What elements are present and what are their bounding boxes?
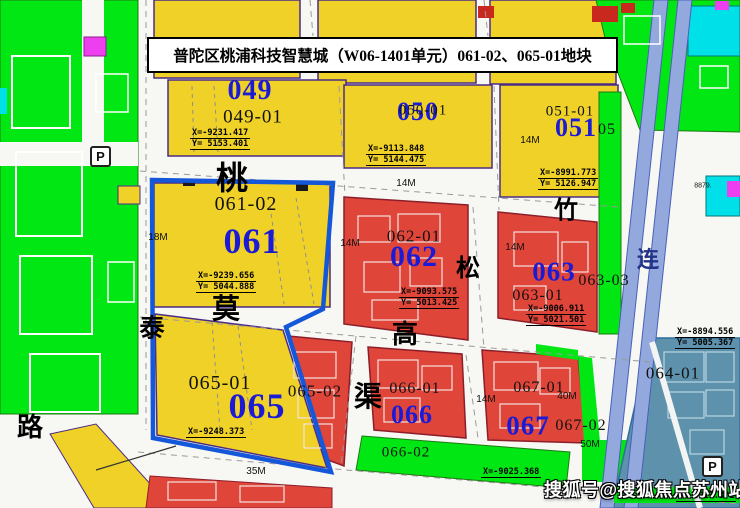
parking-icon: P [90,146,111,167]
planning-map: 049050051061062063065066067049-01050-010… [0,0,740,508]
parcel-number-061: 061 [224,223,281,259]
parcel-sublabel-066-02: 066-02 [382,446,431,461]
parcel-number-066: 066 [391,402,433,428]
parcel-sublabel-05: 05 [598,122,616,138]
parcel-number-062: 062 [390,242,438,272]
parcel-sublabel-050-01: 050-01 [399,104,448,119]
coordinate-line: X=-9006.911 [526,304,586,315]
coordinate-line: Y= 5126.947 [538,179,598,190]
road-width-label: 50M [580,440,599,450]
road-name-char: 泰 [139,317,164,342]
coordinate-line: Y= 5005.367 [675,338,735,349]
parcel-sublabel-051-01: 051-01 [546,105,595,120]
coordinate-line: Y= 5013.425 [399,298,459,309]
parcel-sublabel-065-01: 065-01 [189,373,252,393]
coordinate-line: X=-9248.373 [186,427,246,438]
parcel-number-049: 049 [228,77,273,105]
parcel-sublabel-063-03: 063-03 [578,273,629,289]
coordinate-callout: X=-9239.656Y= 5044.888 [196,271,256,293]
road-width-label: 35M [246,467,265,477]
coordinate-line: X=-9239.656 [196,271,256,282]
coordinate-line: X=-8991.773 [538,168,598,179]
parcel-sublabel-061-02: 061-02 [215,194,278,214]
coordinate-line: X=-9113.848 [366,144,426,155]
coordinate-callout: X=-9093.575Y= 5013.425 [399,287,459,309]
road-name-char: 松 [456,257,480,281]
road-width-label: 14M [476,395,495,405]
road-name-char: 桃 [216,162,248,194]
coordinate-callout: X=-9231.417Y= 5153.401 [190,128,250,150]
map-labels-overlay: 049050051061062063065066067049-01050-010… [0,0,740,508]
title-banner: 普陀区桃浦科技智慧城（W06-1401单元）061-02、065-01地块 [147,37,618,73]
road-name-char: 竹 [554,199,578,223]
coordinate-callout: X=-9006.911Y= 5021.501 [526,304,586,326]
coordinate-callout: X=-9248.373 [186,427,246,438]
parcel-sublabel-064-01: 064-01 [646,365,700,382]
road-name-char: 渠 [354,384,382,412]
parcel-sublabel-062-01: 062-01 [387,228,441,245]
coordinate-callout: X=-9113.848Y= 5144.475 [366,144,426,166]
road-width-label: 14M [340,239,359,249]
coordinate-line: Y= 5144.475 [366,155,426,166]
coordinate-line: Y= 5153.401 [190,139,250,150]
coordinate-line: Y= 5044.888 [196,282,256,293]
coordinate-callout: X=-9025.368 [481,467,541,478]
road-width-label: 14M [520,136,539,146]
coordinate-line: X=-9231.417 [190,128,250,139]
parcel-sublabel-065-02: 065-02 [288,383,342,400]
road-width-label: 14M [396,179,415,189]
title-banner-text: 普陀区桃浦科技智慧城（W06-1401单元）061-02、065-01地块 [173,44,592,66]
parcel-sublabel-063-01: 063-01 [512,288,563,304]
parcel-number-063: 063 [532,259,576,286]
road-name-char: 连 [637,249,659,271]
parcel-number-067: 067 [506,413,550,440]
road-name-char: 莫 [212,296,240,324]
parking-icon: P [702,456,723,477]
tiny-annotation: 8879. [694,183,712,190]
road-width-label: 40M [557,392,576,402]
road-name-char: 高 [392,322,418,348]
coordinate-line: Y= 5021.501 [526,315,586,326]
parcel-sublabel-066-01: 066-01 [389,381,440,397]
coordinate-line: X=-9025.368 [481,467,541,478]
watermark: 搜狐号@搜狐焦点苏州站 [544,476,740,502]
parcel-sublabel-067-02: 067-02 [555,418,606,434]
coordinate-callout: X=-8894.556Y= 5005.367 [675,327,735,349]
parcel-sublabel-049-01: 049-01 [223,108,283,127]
coordinate-callout: X=-8991.773Y= 5126.947 [538,168,598,190]
road-name-char: 路 [17,415,43,441]
road-width-label: 14M [505,243,524,253]
coordinate-line: X=-9093.575 [399,287,459,298]
road-width-label: 18M [148,233,167,243]
coordinate-line: X=-8894.556 [675,327,735,338]
